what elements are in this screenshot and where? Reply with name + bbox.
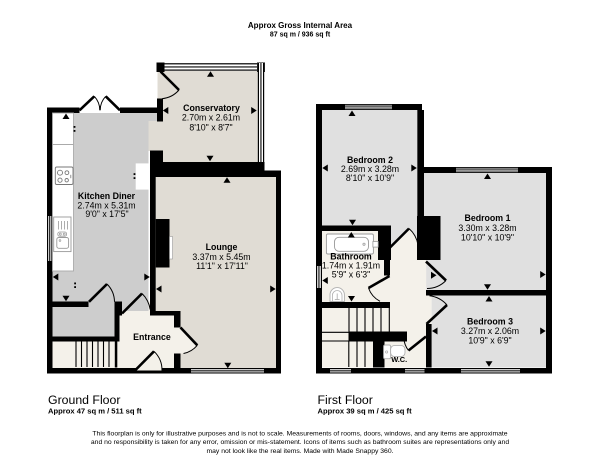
svg-text:Bedroom 1: Bedroom 1 (465, 213, 511, 223)
svg-text:Ground Floor: Ground Floor (48, 393, 120, 407)
svg-text:9'0" x 17'5": 9'0" x 17'5" (85, 209, 128, 219)
svg-text:This floorplan is only for ill: This floorplan is only for illustrative … (92, 430, 507, 437)
svg-text:W.C.: W.C. (391, 355, 407, 364)
svg-text:Approx 47 sq m / 511 sq ft: Approx 47 sq m / 511 sq ft (48, 406, 142, 415)
svg-text:First Floor: First Floor (318, 393, 373, 407)
svg-text:may not look like the real ite: may not look like the real items. Made w… (206, 448, 393, 455)
svg-text:10'9" x 6'9": 10'9" x 6'9" (468, 335, 511, 345)
svg-text:8'10" x 8'7": 8'10" x 8'7" (189, 122, 232, 132)
svg-text:Lounge: Lounge (206, 242, 238, 252)
svg-text:Approx Gross Internal Area: Approx Gross Internal Area (248, 21, 353, 30)
svg-text:5'9" x 6'3": 5'9" x 6'3" (332, 270, 370, 280)
svg-text:10'10" x 10'9": 10'10" x 10'9" (461, 233, 514, 243)
svg-text:11'1" x 17'11": 11'1" x 17'11" (196, 261, 248, 271)
svg-text:Conservatory: Conservatory (183, 103, 240, 113)
svg-text:Bedroom 3: Bedroom 3 (467, 317, 513, 327)
svg-text:and no responsibility is taken: and no responsibility is taken for any e… (91, 439, 509, 446)
svg-text:Approx 39 sq m / 425 sq ft: Approx 39 sq m / 425 sq ft (318, 406, 413, 415)
svg-text:3.30m x 3.28m: 3.30m x 3.28m (458, 223, 516, 233)
svg-text:8'10" x 10'9": 8'10" x 10'9" (346, 173, 394, 183)
svg-text:Entrance: Entrance (133, 332, 171, 342)
svg-text:87 sq m / 936 sq ft: 87 sq m / 936 sq ft (270, 32, 331, 39)
svg-text:2.70m x 2.61m: 2.70m x 2.61m (182, 113, 240, 123)
